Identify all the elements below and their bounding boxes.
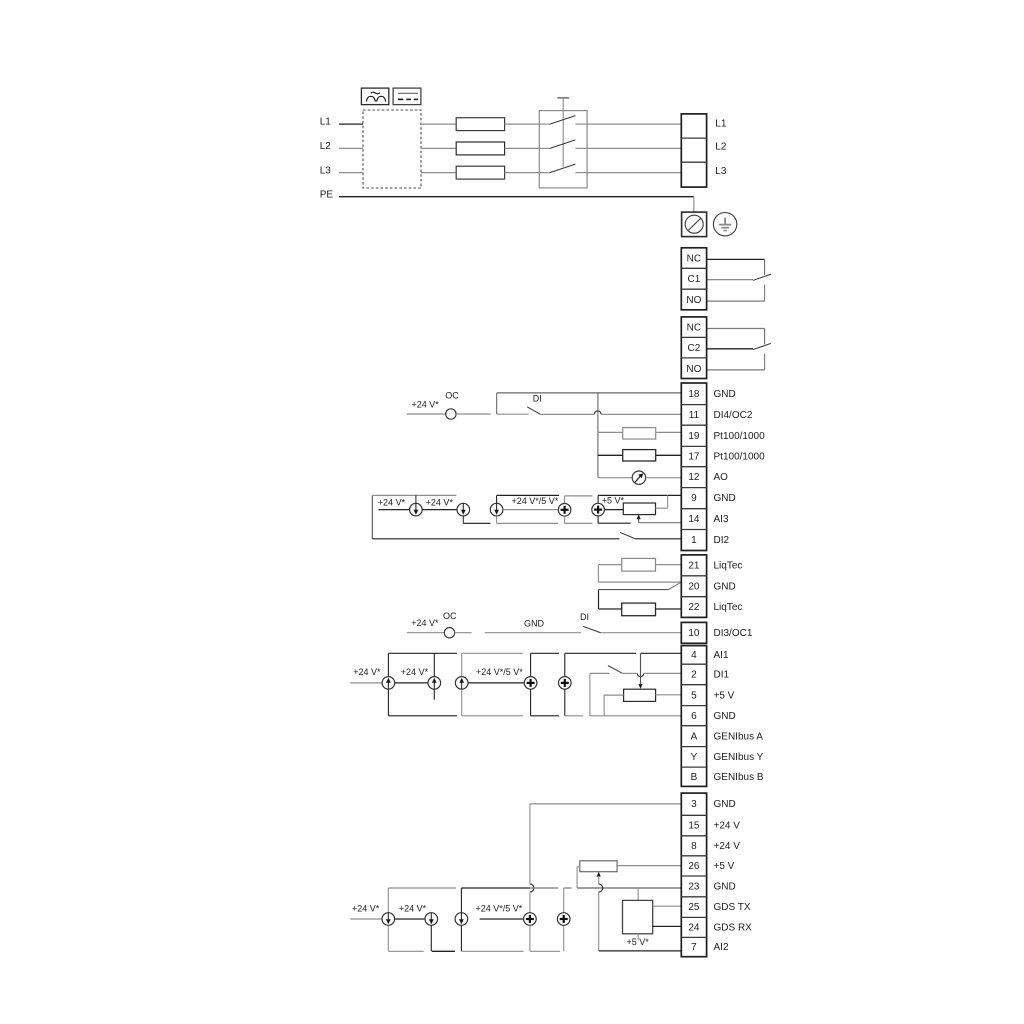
svg-text:+24 V*: +24 V* xyxy=(378,497,406,507)
svg-text:12: 12 xyxy=(688,472,700,483)
svg-text:L2: L2 xyxy=(715,142,727,153)
svg-text:GND: GND xyxy=(714,389,736,400)
svg-text:+5 V: +5 V xyxy=(714,690,735,701)
svg-text:8: 8 xyxy=(691,841,697,852)
svg-text:AI3: AI3 xyxy=(714,514,729,525)
svg-text:15: 15 xyxy=(688,821,700,832)
svg-text:21: 21 xyxy=(688,560,700,571)
svg-text:14: 14 xyxy=(688,514,700,525)
svg-text:LiqTec: LiqTec xyxy=(714,602,743,613)
svg-text:PE: PE xyxy=(320,189,334,200)
svg-text:L1: L1 xyxy=(320,116,332,127)
svg-text:7: 7 xyxy=(691,942,697,953)
svg-text:L3: L3 xyxy=(715,166,727,177)
svg-text:4: 4 xyxy=(691,650,697,661)
svg-text:NC: NC xyxy=(687,323,701,334)
svg-text:+24 V*: +24 V* xyxy=(399,903,427,913)
svg-text:AO: AO xyxy=(714,472,729,483)
svg-text:17: 17 xyxy=(688,452,700,463)
svg-text:5: 5 xyxy=(691,690,697,701)
svg-text:22: 22 xyxy=(688,602,700,613)
svg-text:+24 V*: +24 V* xyxy=(411,618,439,628)
svg-text:+24 V*: +24 V* xyxy=(352,903,380,913)
svg-text:C1: C1 xyxy=(688,274,701,285)
svg-text:6: 6 xyxy=(691,711,697,722)
svg-text:+24 V: +24 V xyxy=(714,821,741,832)
svg-text:AI2: AI2 xyxy=(714,942,729,953)
svg-text:24: 24 xyxy=(688,922,700,933)
svg-text:Pt100/1000: Pt100/1000 xyxy=(714,452,766,463)
svg-text:+5 V*: +5 V* xyxy=(602,496,625,506)
svg-text:+24 V*/5 V*: +24 V*/5 V* xyxy=(476,667,523,677)
svg-text:GENIbus A: GENIbus A xyxy=(714,731,764,742)
svg-text:OC: OC xyxy=(445,391,459,401)
svg-text:GND: GND xyxy=(714,711,736,722)
svg-text:GND: GND xyxy=(714,581,736,592)
svg-text:11: 11 xyxy=(689,410,700,421)
svg-text:DI: DI xyxy=(533,393,542,403)
svg-text:+5 V: +5 V xyxy=(714,861,735,872)
svg-text:19: 19 xyxy=(688,431,700,442)
svg-text:L3: L3 xyxy=(320,165,332,176)
svg-text:20: 20 xyxy=(688,581,700,592)
svg-text:23: 23 xyxy=(688,881,700,892)
svg-text:+24 V*/5 V*: +24 V*/5 V* xyxy=(476,903,523,913)
svg-text:L1: L1 xyxy=(715,118,727,129)
svg-text:GDS TX: GDS TX xyxy=(714,902,751,913)
svg-text:C2: C2 xyxy=(688,343,701,354)
svg-text:+24 V*: +24 V* xyxy=(412,399,440,409)
svg-text:DI4/OC2: DI4/OC2 xyxy=(714,410,753,421)
svg-text:+24 V*/5 V*: +24 V*/5 V* xyxy=(512,496,559,506)
svg-text:L2: L2 xyxy=(320,141,332,152)
svg-text:+24 V: +24 V xyxy=(714,841,741,852)
svg-text:GENIbus B: GENIbus B xyxy=(714,772,764,783)
svg-text:10: 10 xyxy=(688,628,700,639)
svg-text:2: 2 xyxy=(691,670,697,681)
svg-text:GND: GND xyxy=(714,493,736,504)
svg-text:GENIbus Y: GENIbus Y xyxy=(714,752,764,763)
svg-text:GND: GND xyxy=(714,881,736,892)
svg-text:Pt100/1000: Pt100/1000 xyxy=(714,431,766,442)
svg-text:18: 18 xyxy=(688,389,700,400)
svg-text:B: B xyxy=(691,772,698,783)
svg-text:9: 9 xyxy=(691,493,697,504)
svg-text:GDS RX: GDS RX xyxy=(714,922,753,933)
svg-text:1: 1 xyxy=(691,535,697,546)
svg-text:GND: GND xyxy=(714,799,736,810)
svg-text:OC: OC xyxy=(443,611,457,621)
svg-text:DI1: DI1 xyxy=(714,670,730,681)
svg-text:+24 V*: +24 V* xyxy=(353,667,381,677)
svg-text:NO: NO xyxy=(686,364,701,375)
svg-text:A: A xyxy=(691,731,698,742)
svg-text:26: 26 xyxy=(688,861,700,872)
svg-text:DI: DI xyxy=(580,612,589,622)
svg-text:GND: GND xyxy=(524,618,545,628)
svg-text:3: 3 xyxy=(691,799,697,810)
svg-text:NC: NC xyxy=(687,254,701,265)
svg-text:DI2: DI2 xyxy=(714,535,730,546)
svg-text:Y: Y xyxy=(691,752,698,763)
svg-text:+24 V*: +24 V* xyxy=(401,667,429,677)
svg-text:DI3/OC1: DI3/OC1 xyxy=(714,628,753,639)
svg-text:LiqTec: LiqTec xyxy=(714,560,743,571)
svg-text:+5 V*: +5 V* xyxy=(627,937,650,947)
svg-text:25: 25 xyxy=(688,902,700,913)
svg-text:+24 V*: +24 V* xyxy=(426,497,454,507)
svg-text:AI1: AI1 xyxy=(714,650,729,661)
svg-text:NO: NO xyxy=(686,295,701,306)
